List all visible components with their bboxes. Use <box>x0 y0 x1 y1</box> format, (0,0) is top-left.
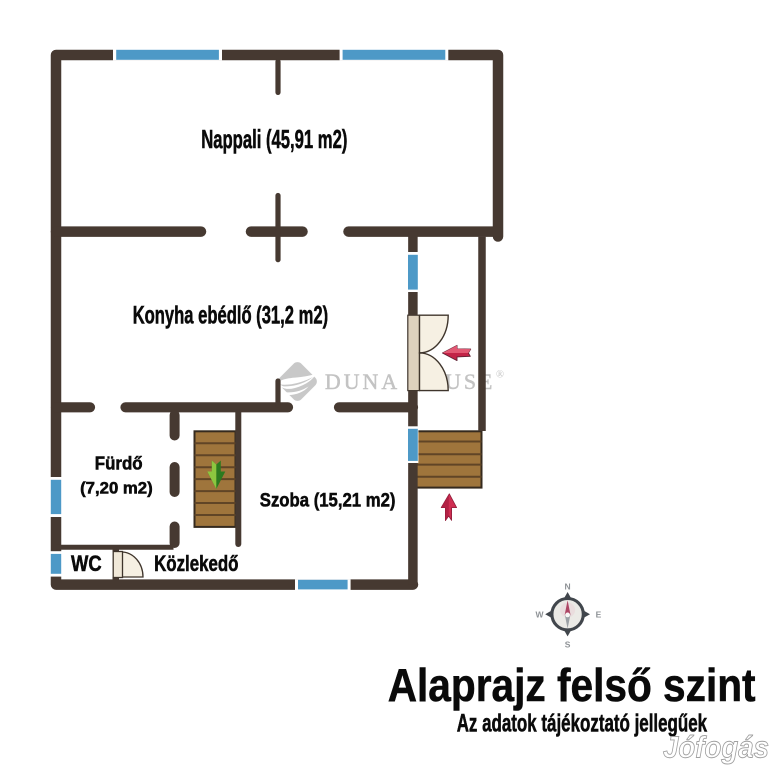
svg-text:W: W <box>535 609 544 619</box>
svg-text:Szoba (15,21 m2): Szoba (15,21 m2) <box>260 489 396 511</box>
svg-text:Konyha ebédlő (31,2 m2): Konyha ebédlő (31,2 m2) <box>133 301 328 329</box>
svg-text:Jófogás: Jófogás <box>663 730 769 765</box>
svg-text:®: ® <box>496 369 504 380</box>
svg-text:Közlekedő: Közlekedő <box>154 551 238 576</box>
svg-text:(7,20 m2): (7,20 m2) <box>80 479 153 497</box>
svg-text:Fürdő: Fürdő <box>95 453 143 473</box>
svg-text:S: S <box>565 640 571 650</box>
svg-text:N: N <box>565 582 571 592</box>
svg-text:Nappali (45,91 m2): Nappali (45,91 m2) <box>201 126 347 154</box>
svg-text:E: E <box>596 609 602 619</box>
svg-text:Alaprajz felső szint: Alaprajz felső szint <box>388 659 756 711</box>
svg-text:WC: WC <box>71 551 102 576</box>
